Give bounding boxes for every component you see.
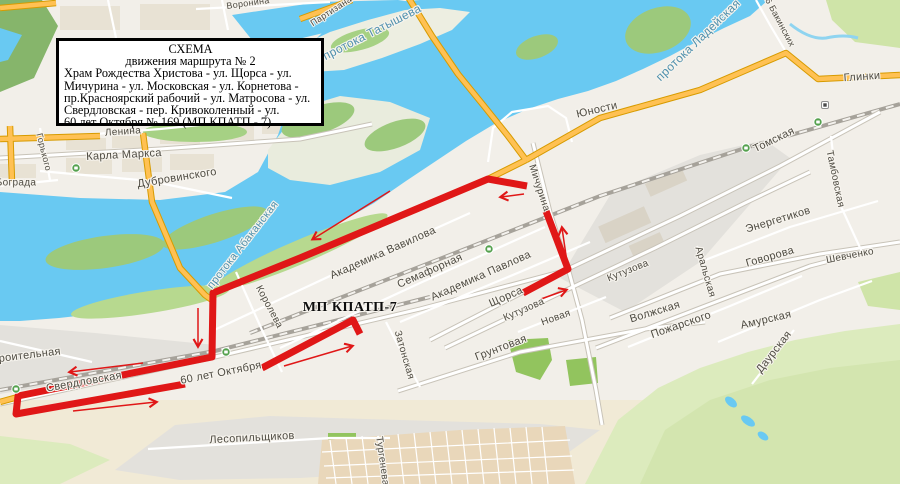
bus-glyph [74, 167, 78, 170]
bus-glyph [816, 121, 820, 124]
bus-glyph [744, 147, 748, 150]
route-description-line: 60 лет Октября № 169 (МП КПАТП - 7). [64, 116, 317, 128]
bus-glyph [224, 351, 228, 354]
bus-glyph [14, 388, 18, 391]
transport-stop-glyph [823, 103, 826, 106]
bus-glyph [487, 248, 491, 251]
route-scheme-map: ВоронинаПартизанапротока Татышевапротока… [0, 0, 900, 484]
route-title-box: СХЕМА движения маршрута № 2 Храм Рождест… [56, 38, 324, 126]
route-description-line: Храм Рождества Христова - ул. Щорса - ул… [64, 67, 317, 79]
route-description-line: Мичурина - ул. Московская - ул. Корнетов… [64, 80, 317, 92]
